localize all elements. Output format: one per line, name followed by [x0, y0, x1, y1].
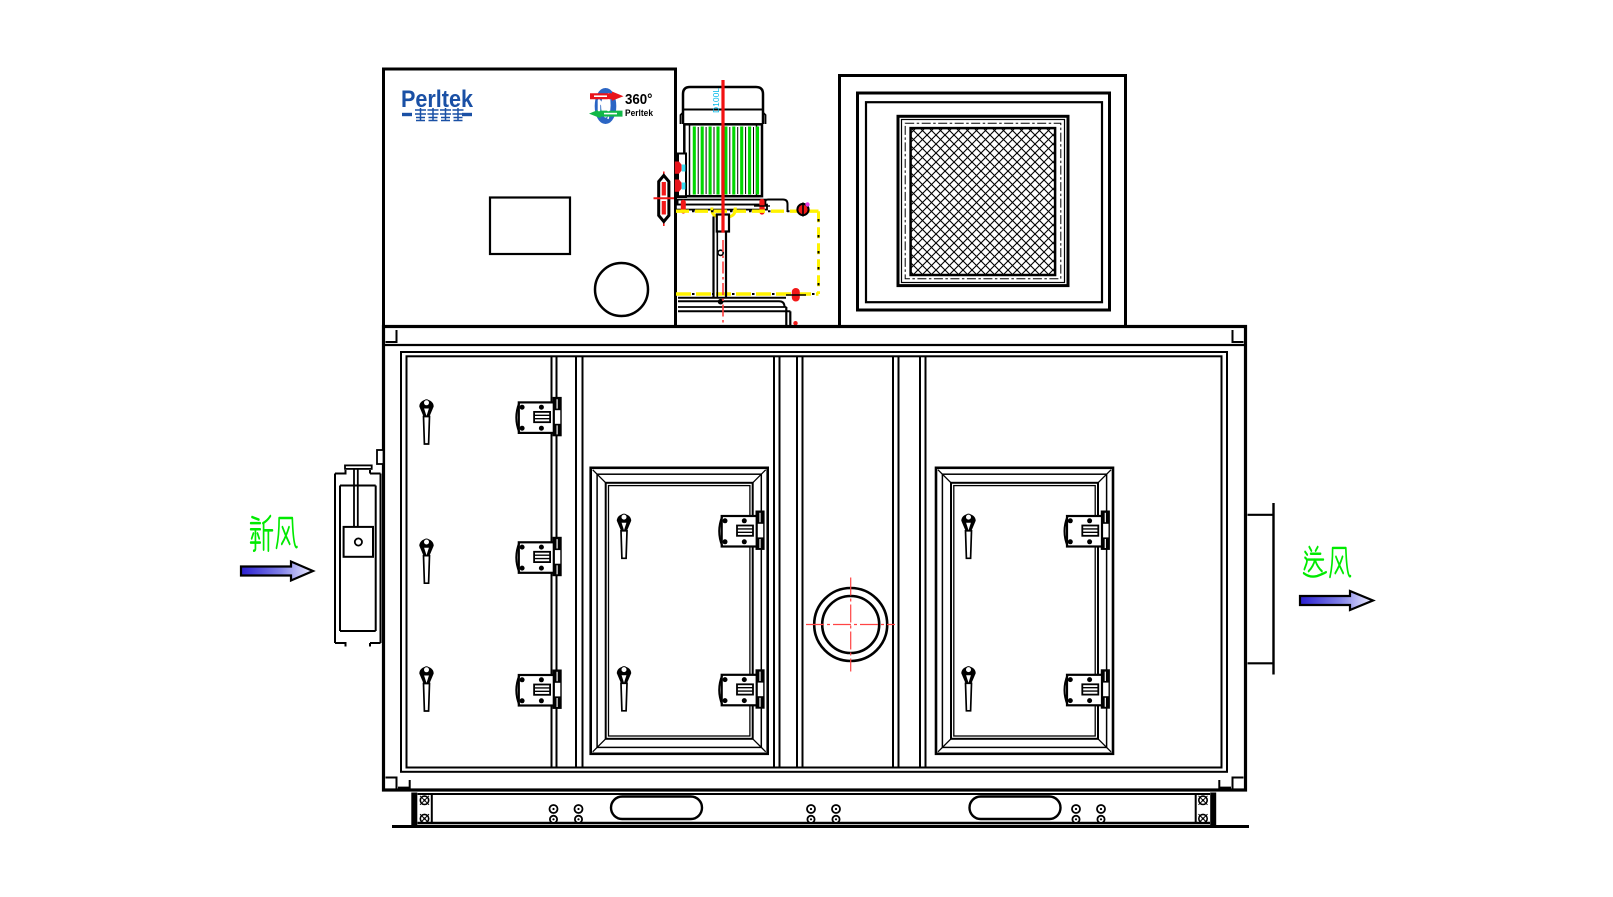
svg-text:Perltek: Perltek [625, 108, 654, 119]
svg-text:360°: 360° [625, 92, 653, 108]
svg-text:Perltek: Perltek [401, 86, 474, 113]
svg-text:D100L: D100L [711, 88, 721, 113]
